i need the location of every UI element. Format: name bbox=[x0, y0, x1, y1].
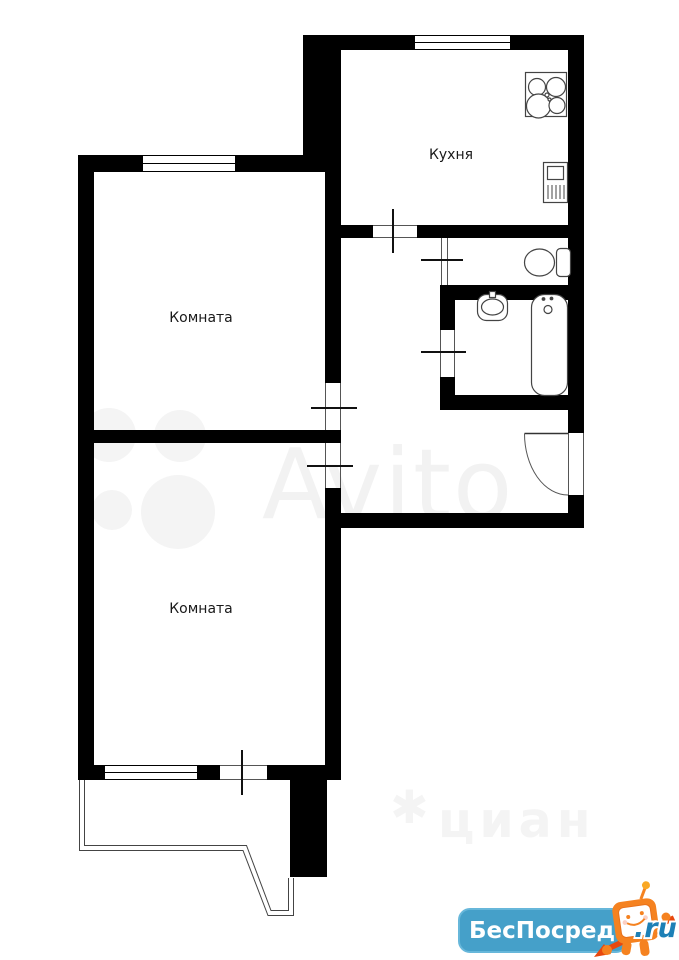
wall-segment bbox=[440, 395, 568, 410]
wall-segment bbox=[341, 513, 584, 528]
toilet-icon bbox=[525, 249, 571, 277]
wall-segment bbox=[78, 430, 341, 443]
wall-segment bbox=[303, 35, 341, 172]
kitchen-label: Кухня bbox=[418, 147, 484, 163]
room-top-label: Комната bbox=[156, 310, 246, 326]
wall-segment bbox=[78, 155, 94, 780]
kitchen-sink-unit-icon bbox=[544, 163, 568, 203]
balcony-door-frame bbox=[220, 766, 267, 780]
kitchen-door-frame bbox=[373, 226, 417, 238]
bathtub-icon bbox=[532, 295, 568, 396]
doors bbox=[242, 209, 466, 795]
bathroom-door-frame bbox=[441, 330, 455, 377]
wall-segment bbox=[341, 225, 373, 238]
wall-segment bbox=[197, 765, 220, 780]
entry-door bbox=[525, 433, 585, 495]
room-top-door-frame bbox=[326, 383, 341, 430]
floorplan-drawing bbox=[0, 0, 679, 960]
washbasin-icon bbox=[478, 292, 508, 321]
room-top-window bbox=[143, 155, 235, 172]
entry-door-arc bbox=[525, 434, 569, 496]
stove-icon bbox=[526, 73, 567, 119]
wall-segment bbox=[78, 765, 105, 780]
floorplan-page: Avito ✱ циан bbox=[0, 0, 679, 960]
wall-segment bbox=[290, 778, 327, 877]
balcony-outline bbox=[80, 780, 294, 916]
ru-suffix-label: .ru bbox=[634, 913, 677, 944]
wall-segment bbox=[417, 225, 568, 238]
room-bottom-window bbox=[105, 765, 197, 780]
wall-segment bbox=[440, 300, 455, 330]
wall-segment bbox=[325, 155, 341, 383]
wall-segment bbox=[267, 765, 338, 780]
toilet-door-frame bbox=[442, 238, 448, 285]
wall-segment bbox=[235, 155, 325, 172]
kitchen-window bbox=[415, 35, 510, 50]
room-bottom-label: Комната bbox=[156, 601, 246, 617]
wall-segment bbox=[325, 488, 341, 780]
